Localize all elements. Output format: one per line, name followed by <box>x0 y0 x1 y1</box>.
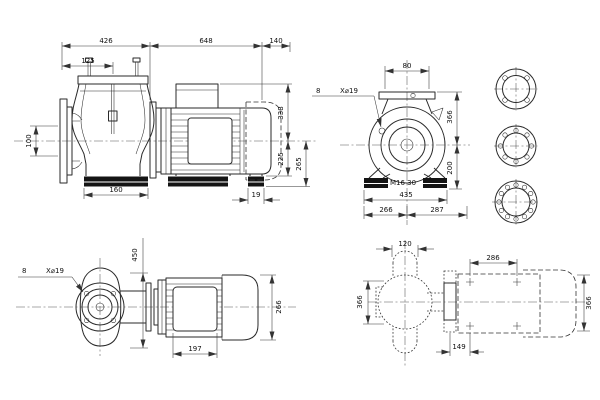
hole-spec-label: X⌀19 <box>340 87 358 95</box>
motor-outline <box>150 84 281 187</box>
anchor-hole-marks <box>466 278 521 330</box>
view-side-elevation: 426 648 140 125 100 160 338 225 265 19 <box>14 37 318 204</box>
dim-265: 265 <box>295 157 303 170</box>
motor-footprint <box>458 270 576 337</box>
dim-140: 140 <box>269 37 282 45</box>
dim-286: 286 <box>486 254 500 262</box>
anchor-thread-label: M16 30 <box>390 179 416 187</box>
dim-366: 366 <box>446 110 454 124</box>
motor-plan-outline <box>158 275 258 340</box>
dim-160: 160 <box>109 186 122 194</box>
hole-count-label: 8 <box>316 87 320 95</box>
view-end: 80 8 X⌀19 366 200 M16 30 435 266 287 <box>312 60 470 225</box>
dim-80: 80 <box>403 62 412 70</box>
dim-450: 450 <box>131 248 139 261</box>
terminal-box <box>176 84 218 108</box>
hole-count-label: 8 <box>22 267 26 275</box>
dim-149: 149 <box>452 343 465 351</box>
dim-200: 200 <box>446 161 454 174</box>
pump-outline <box>60 58 154 187</box>
dimensions-side-elevation: 426 648 140 125 100 160 338 225 265 19 <box>25 37 310 204</box>
dim-287: 287 <box>430 206 443 214</box>
hole-spec-label: X⌀19 <box>46 267 64 275</box>
dim-19: 19 <box>252 191 261 199</box>
flange-bolt-hole <box>411 93 415 97</box>
flange-12-hole <box>492 179 540 225</box>
dim-366-right: 366 <box>585 296 593 310</box>
dim-266: 266 <box>275 300 283 314</box>
flange-4-hole <box>494 67 538 111</box>
bolt-hole-callout-target <box>379 128 385 134</box>
dim-100: 100 <box>25 134 33 147</box>
view-foundation-plan: 120 286 366 366 149 <box>356 240 593 366</box>
view-flange-faces <box>492 67 540 225</box>
centerlines <box>368 240 588 366</box>
dim-225: 225 <box>277 152 285 165</box>
dim-426: 426 <box>99 37 113 45</box>
dim-120: 120 <box>398 240 411 248</box>
technical-drawing-canvas: 426 648 140 125 100 160 338 225 265 19 <box>0 0 600 400</box>
dim-197: 197 <box>188 345 201 353</box>
dim-435: 435 <box>399 191 412 199</box>
dim-266: 266 <box>379 206 393 214</box>
dim-648: 648 <box>199 37 212 45</box>
dim-338: 338 <box>277 106 285 119</box>
pump-dimensional-drawing: 426 648 140 125 100 160 338 225 265 19 <box>0 0 600 400</box>
flange-8-hole <box>494 124 538 168</box>
dim-125: 125 <box>81 57 94 65</box>
dimensions-foundation-plan: 120 286 366 366 149 <box>356 240 593 356</box>
dim-366-left: 366 <box>356 295 364 309</box>
view-plan: 8 X⌀19 450 197 266 <box>16 238 296 358</box>
bearing-pedestal <box>444 283 456 320</box>
